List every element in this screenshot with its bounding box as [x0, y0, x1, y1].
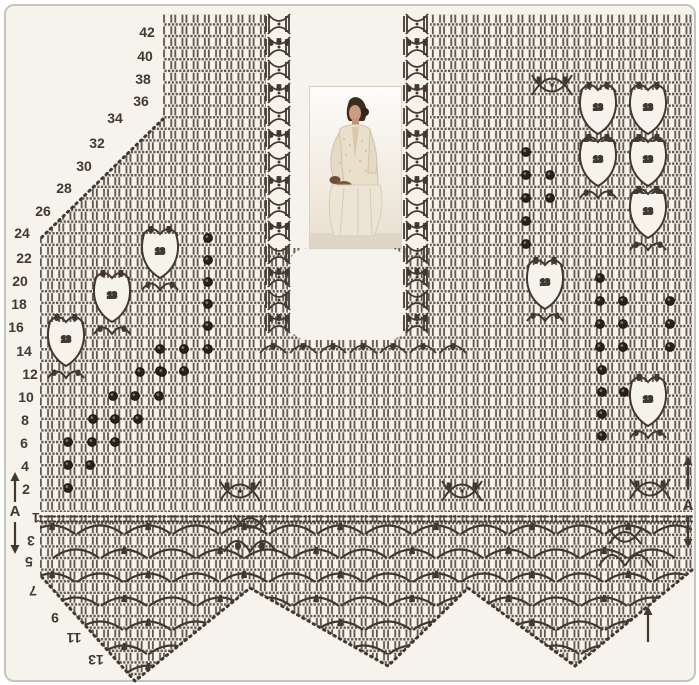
- svg-text:5: 5: [415, 177, 419, 184]
- svg-text:7: 7: [146, 618, 150, 625]
- svg-text:7: 7: [218, 546, 222, 553]
- svg-text:13: 13: [540, 277, 550, 287]
- row-label-left: 32: [89, 135, 105, 151]
- svg-text:5: 5: [271, 344, 275, 351]
- svg-text:5: 5: [277, 223, 281, 230]
- row-label-left: 8: [21, 412, 29, 428]
- svg-text:7: 7: [218, 594, 222, 601]
- svg-text:5: 5: [451, 344, 455, 351]
- svg-text:5: 5: [301, 344, 305, 351]
- svg-text:5: 5: [587, 135, 591, 142]
- svg-text:5: 5: [415, 269, 419, 276]
- svg-text:5: 5: [415, 39, 419, 46]
- row-label-left: 42: [139, 24, 155, 40]
- row-label-left: 40: [137, 48, 153, 64]
- model-photo-image: [310, 87, 401, 248]
- svg-text:5: 5: [655, 187, 659, 194]
- svg-text:5: 5: [655, 375, 659, 382]
- svg-text:6: 6: [52, 370, 56, 377]
- svg-text:6: 6: [122, 326, 126, 333]
- svg-text:6: 6: [584, 190, 588, 197]
- svg-text:5: 5: [637, 135, 641, 142]
- letter-a-label: A: [10, 503, 21, 520]
- svg-text:7: 7: [122, 546, 126, 553]
- model-photo: [310, 87, 401, 248]
- svg-text:5: 5: [277, 39, 281, 46]
- svg-text:5: 5: [415, 223, 419, 230]
- svg-text:7: 7: [146, 570, 150, 577]
- row-label-bottom: 3: [27, 533, 35, 549]
- svg-text:5: 5: [534, 258, 538, 265]
- svg-text:5: 5: [552, 258, 556, 265]
- row-label-bottom: 11: [66, 630, 81, 646]
- svg-text:7: 7: [506, 546, 510, 553]
- svg-text:7: 7: [434, 522, 438, 529]
- svg-text:13: 13: [643, 102, 653, 112]
- svg-text:6: 6: [634, 430, 638, 437]
- svg-text:6: 6: [531, 313, 535, 320]
- svg-text:7: 7: [242, 522, 246, 529]
- row-label-bottom: 1: [32, 510, 40, 526]
- svg-text:9: 9: [236, 542, 241, 551]
- svg-text:5: 5: [661, 481, 665, 488]
- row-label-left: 10: [18, 389, 34, 405]
- row-label-bottom: 9: [51, 610, 59, 626]
- svg-text:5: 5: [277, 315, 281, 322]
- row-label-left: 4: [21, 458, 29, 474]
- svg-text:6: 6: [76, 370, 80, 377]
- svg-text:13: 13: [107, 290, 117, 300]
- svg-text:5: 5: [225, 483, 229, 490]
- svg-text:5: 5: [277, 131, 281, 138]
- row-label-left: 38: [135, 71, 151, 87]
- svg-text:7: 7: [50, 570, 54, 577]
- svg-text:13: 13: [643, 206, 653, 216]
- svg-text:5: 5: [637, 83, 641, 90]
- svg-text:5: 5: [415, 315, 419, 322]
- svg-text:5: 5: [277, 269, 281, 276]
- svg-text:7: 7: [122, 642, 126, 649]
- row-label-bottom: 5: [25, 554, 33, 570]
- svg-text:6: 6: [555, 313, 559, 320]
- svg-text:5: 5: [149, 227, 153, 234]
- row-label-left: 12: [22, 366, 38, 382]
- svg-text:5: 5: [73, 315, 77, 322]
- row-label-left: 14: [16, 343, 32, 359]
- svg-text:7: 7: [530, 618, 534, 625]
- row-label-left: 16: [8, 319, 24, 335]
- svg-text:6: 6: [608, 190, 612, 197]
- svg-text:6: 6: [170, 282, 174, 289]
- svg-text:7: 7: [314, 594, 318, 601]
- svg-text:7: 7: [530, 522, 534, 529]
- row-label-left: 28: [56, 180, 72, 196]
- svg-text:5: 5: [415, 85, 419, 92]
- row-label-left: 2: [22, 481, 30, 497]
- svg-text:13: 13: [155, 246, 165, 256]
- svg-text:13: 13: [643, 154, 653, 164]
- svg-text:5: 5: [637, 187, 641, 194]
- svg-text:7: 7: [626, 522, 630, 529]
- svg-text:7: 7: [338, 618, 342, 625]
- svg-text:5: 5: [635, 481, 639, 488]
- svg-text:7: 7: [146, 522, 150, 529]
- row-label-left: 20: [12, 273, 28, 289]
- svg-text:6: 6: [146, 282, 150, 289]
- row-label-left: 30: [76, 158, 92, 174]
- svg-text:7: 7: [122, 594, 126, 601]
- row-label-bottom: 7: [29, 583, 37, 599]
- svg-text:13: 13: [593, 102, 603, 112]
- svg-text:5: 5: [361, 344, 365, 351]
- svg-text:5: 5: [637, 375, 641, 382]
- svg-text:5: 5: [421, 344, 425, 351]
- svg-text:7: 7: [410, 594, 414, 601]
- svg-text:7: 7: [602, 546, 606, 553]
- svg-text:5: 5: [605, 83, 609, 90]
- crochet-pattern-diagram: 5335335335335335335335335335335335335335…: [0, 0, 699, 685]
- svg-text:7: 7: [626, 570, 630, 577]
- svg-text:5: 5: [473, 483, 477, 490]
- row-label-left: 34: [107, 110, 123, 126]
- svg-text:13: 13: [593, 154, 603, 164]
- svg-text:7: 7: [146, 662, 150, 669]
- svg-text:5: 5: [331, 344, 335, 351]
- svg-text:5: 5: [391, 344, 395, 351]
- row-label-left: 26: [35, 203, 51, 219]
- svg-text:5: 5: [605, 135, 609, 142]
- svg-text:7: 7: [410, 546, 414, 553]
- svg-text:7: 7: [602, 594, 606, 601]
- svg-text:6: 6: [634, 242, 638, 249]
- svg-text:6: 6: [658, 242, 662, 249]
- svg-text:5: 5: [101, 271, 105, 278]
- svg-text:5: 5: [447, 483, 451, 490]
- row-label-bottom: 13: [88, 652, 104, 668]
- row-label-left: 22: [16, 250, 32, 266]
- svg-text:7: 7: [530, 570, 534, 577]
- svg-text:5: 5: [563, 77, 567, 84]
- svg-text:5: 5: [655, 135, 659, 142]
- svg-text:5: 5: [587, 83, 591, 90]
- svg-text:7: 7: [338, 570, 342, 577]
- row-label-left: 18: [11, 296, 27, 312]
- svg-text:5: 5: [655, 83, 659, 90]
- svg-text:5: 5: [537, 77, 541, 84]
- row-label-left: 36: [133, 93, 149, 109]
- svg-text:7: 7: [242, 570, 246, 577]
- svg-text:5: 5: [277, 85, 281, 92]
- svg-text:7: 7: [314, 546, 318, 553]
- svg-text:7: 7: [338, 522, 342, 529]
- svg-text:5: 5: [251, 483, 255, 490]
- svg-text:5: 5: [167, 227, 171, 234]
- svg-text:6: 6: [658, 430, 662, 437]
- svg-text:6: 6: [98, 326, 102, 333]
- svg-text:7: 7: [50, 522, 54, 529]
- svg-text:5: 5: [415, 131, 419, 138]
- letter-a-label: A: [683, 497, 694, 514]
- svg-text:5: 5: [277, 177, 281, 184]
- svg-text:5: 5: [119, 271, 123, 278]
- svg-text:7: 7: [434, 570, 438, 577]
- row-label-left: 24: [14, 225, 30, 241]
- svg-text:13: 13: [61, 334, 71, 344]
- row-label-left: 6: [20, 435, 28, 451]
- svg-text:13: 13: [643, 394, 653, 404]
- svg-text:5: 5: [55, 315, 59, 322]
- svg-text:7: 7: [506, 594, 510, 601]
